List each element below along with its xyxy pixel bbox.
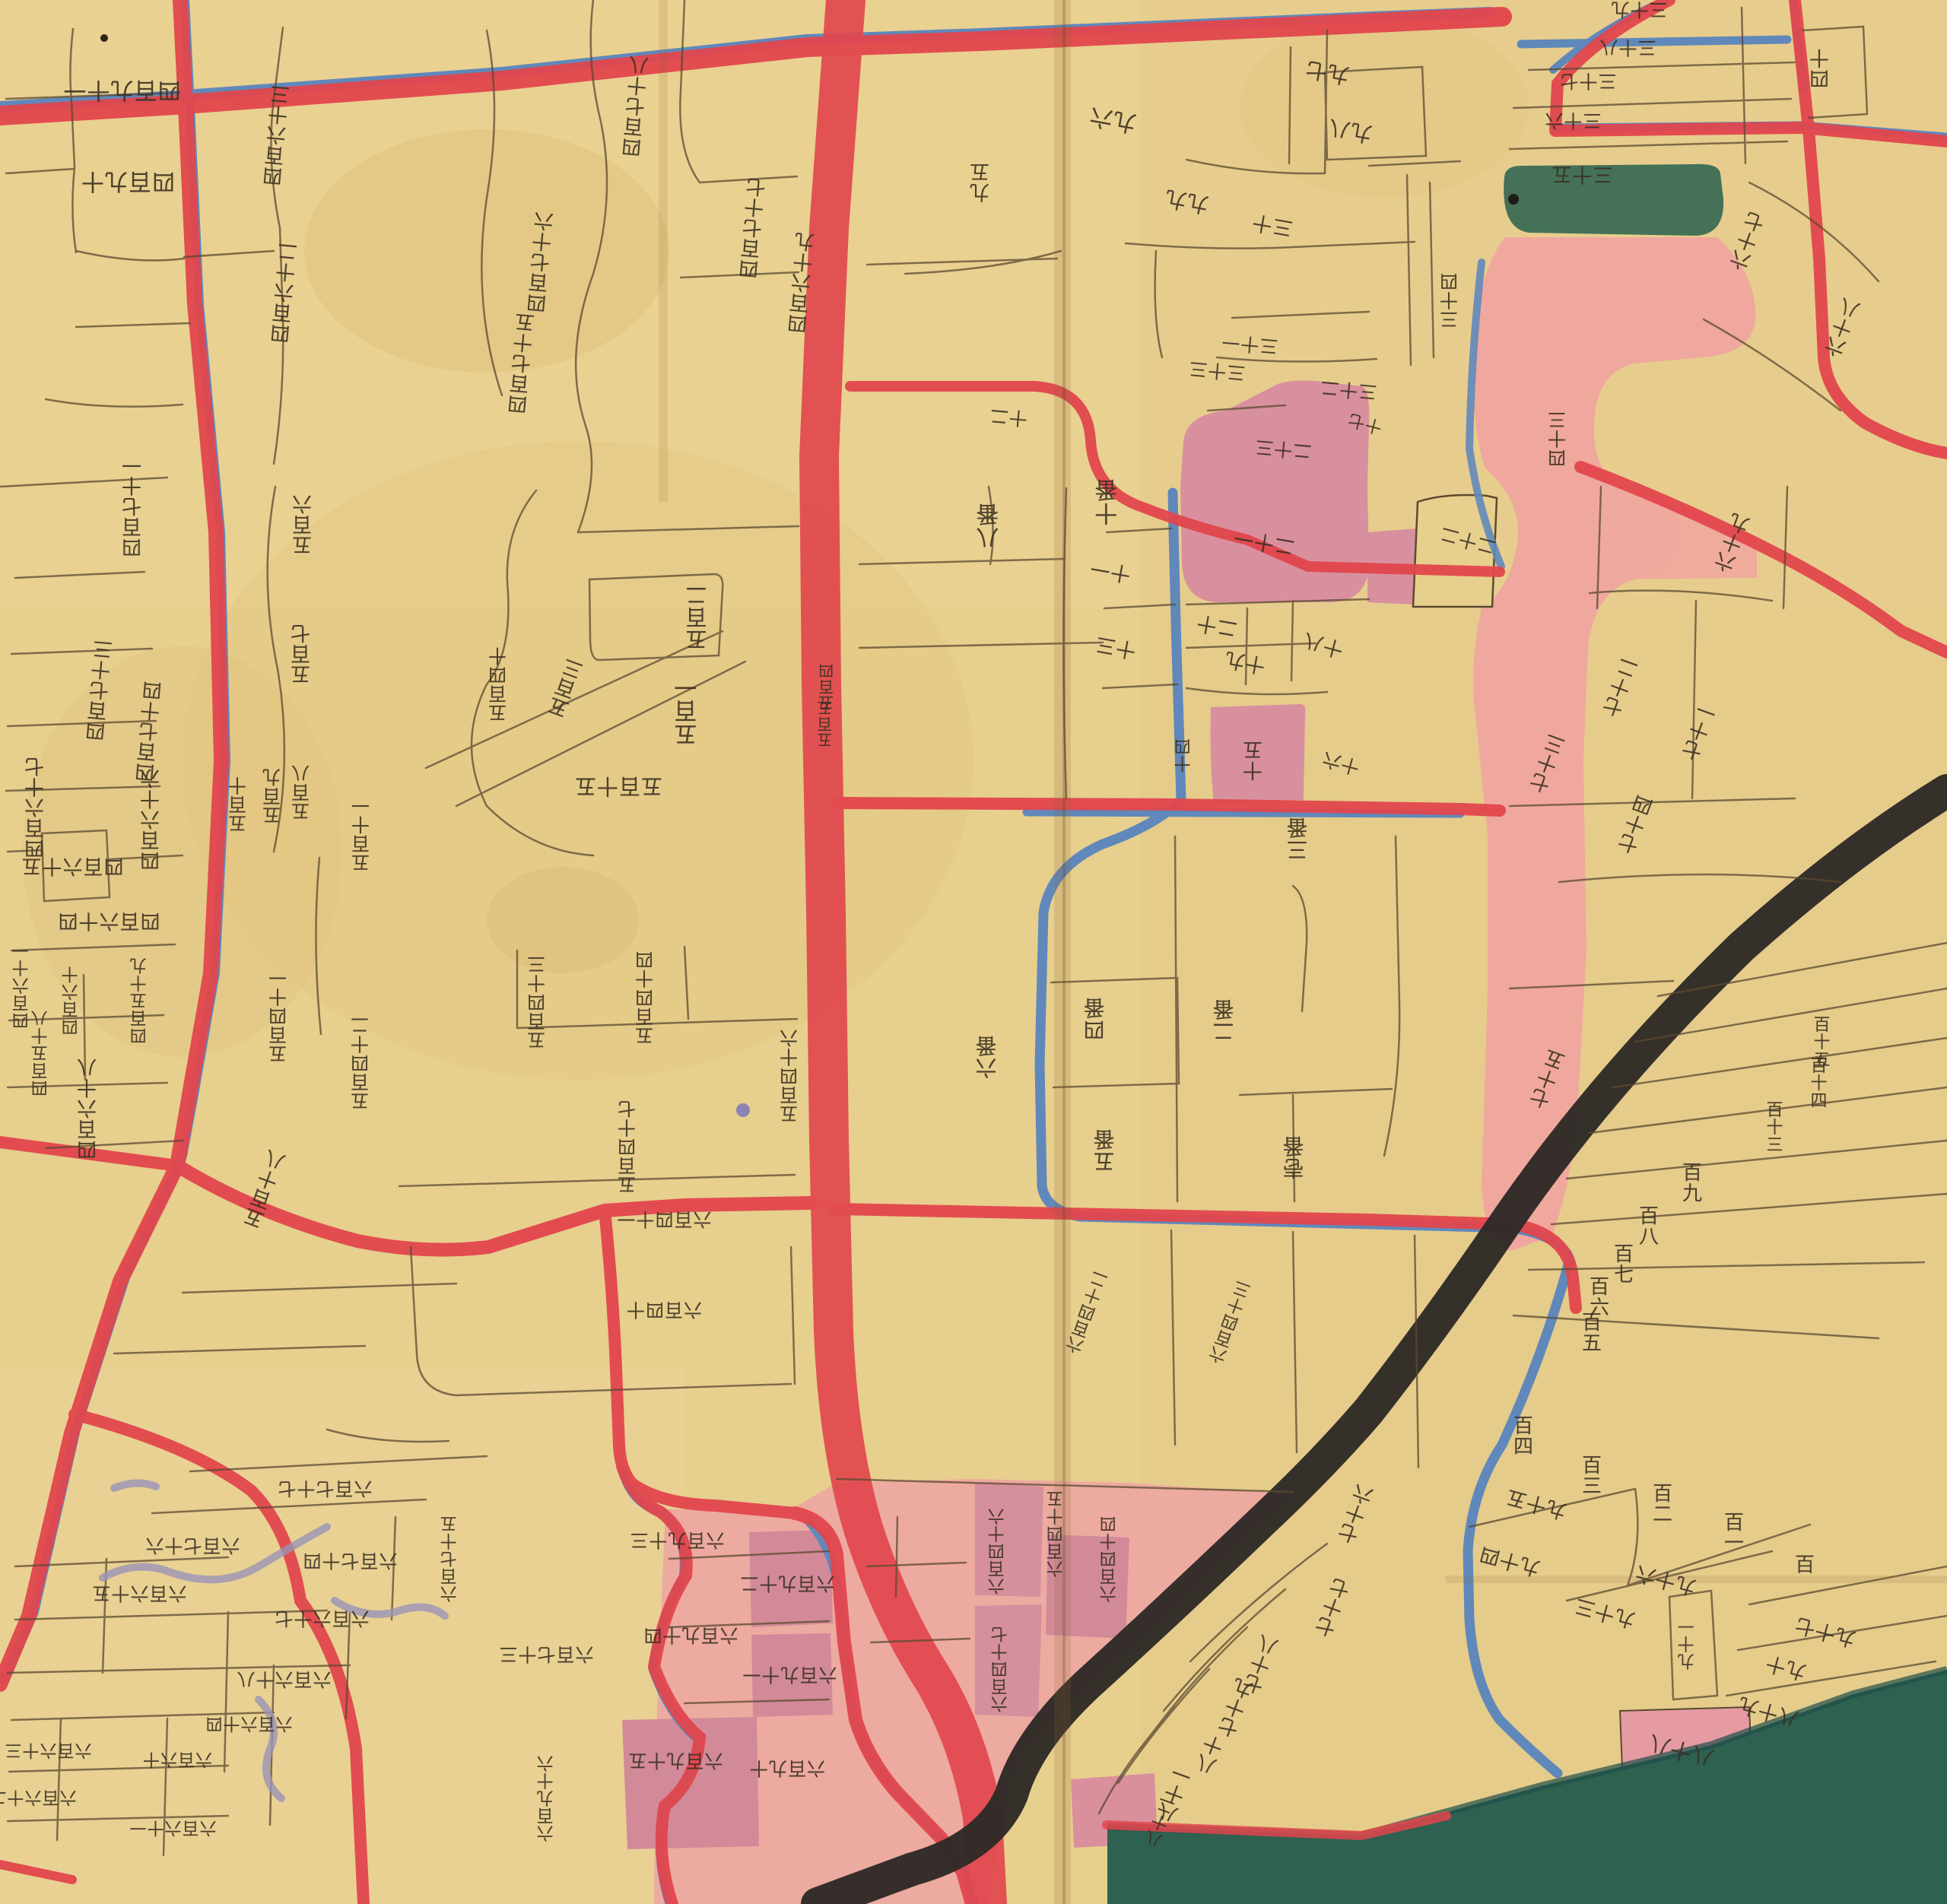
ink-dot	[100, 34, 108, 42]
map-artwork	[0, 0, 1947, 1904]
green-parcel-35	[1504, 164, 1723, 236]
map-canvas[interactable]: 四百九十一四百九十四百六十三四百六十二四百七十八四百七十七四百七十六四百七十五四…	[0, 0, 1947, 1904]
purple-dot	[736, 1103, 750, 1117]
